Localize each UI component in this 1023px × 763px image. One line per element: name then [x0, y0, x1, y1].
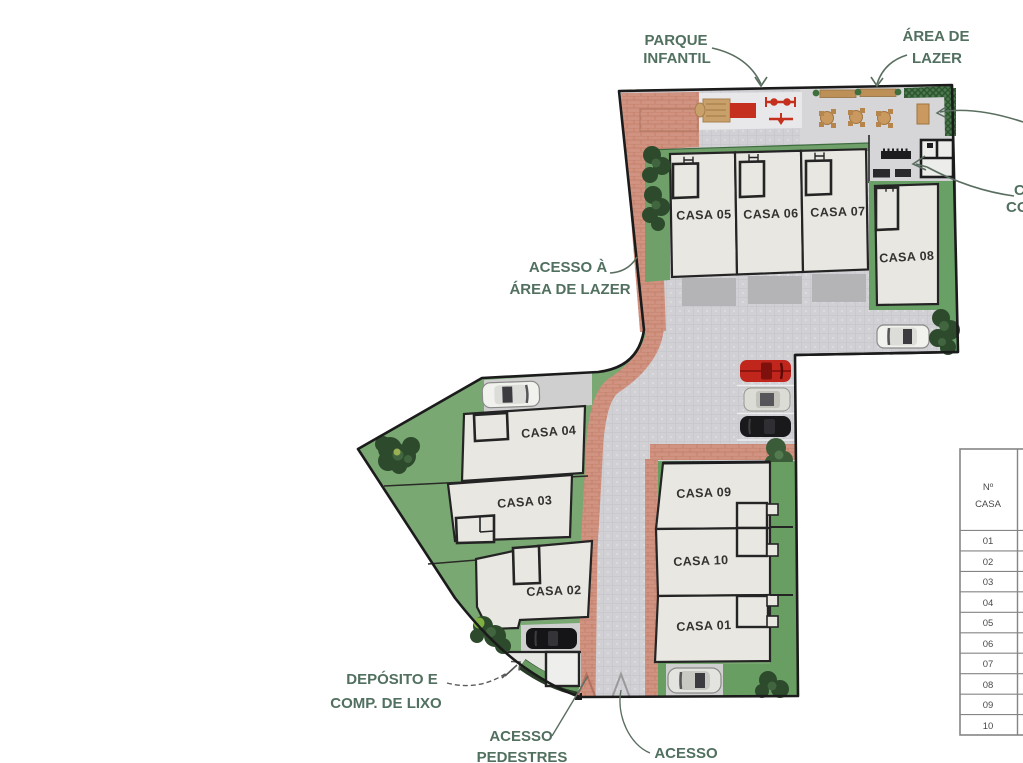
- svg-text:10: 10: [983, 721, 994, 732]
- svg-text:CO: CO: [1006, 199, 1023, 216]
- svg-text:CASA: CASA: [975, 499, 1002, 510]
- svg-text:ACESSO: ACESSO: [654, 745, 718, 762]
- svg-text:06: 06: [983, 639, 994, 650]
- svg-text:02: 02: [983, 557, 994, 568]
- svg-text:Nº: Nº: [983, 482, 994, 493]
- svg-text:08: 08: [983, 680, 994, 691]
- svg-text:05: 05: [983, 618, 994, 629]
- svg-text:CASA 10: CASA 10: [673, 553, 729, 569]
- svg-text:CASA 05: CASA 05: [676, 207, 731, 222]
- svg-text:04: 04: [983, 598, 994, 609]
- svg-text:CASA 01: CASA 01: [676, 618, 732, 634]
- svg-text:INFANTIL: INFANTIL: [643, 50, 711, 67]
- svg-text:CASA 07: CASA 07: [810, 204, 865, 219]
- svg-text:PEDESTRES: PEDESTRES: [477, 749, 568, 763]
- svg-text:09: 09: [983, 700, 994, 711]
- svg-text:CASA 09: CASA 09: [676, 485, 732, 501]
- svg-text:CH: CH: [1014, 182, 1023, 199]
- svg-text:ACESSO: ACESSO: [489, 728, 553, 745]
- svg-text:COMP. DE LIXO: COMP. DE LIXO: [330, 695, 442, 712]
- svg-text:03: 03: [983, 577, 994, 588]
- svg-text:ÁREA DE LAZER: ÁREA DE LAZER: [509, 281, 630, 298]
- svg-text:CASA 08: CASA 08: [879, 249, 935, 266]
- svg-text:LAZER: LAZER: [912, 50, 962, 67]
- svg-text:PARQUE: PARQUE: [644, 32, 707, 49]
- svg-text:CASA 06: CASA 06: [743, 206, 798, 221]
- svg-text:CASA 02: CASA 02: [526, 583, 582, 599]
- svg-text:ÁREA DE: ÁREA DE: [903, 28, 970, 45]
- svg-text:01: 01: [983, 536, 994, 547]
- svg-text:DEPÓSITO E: DEPÓSITO E: [346, 670, 437, 688]
- svg-text:ACESSO À: ACESSO À: [529, 259, 608, 276]
- svg-text:07: 07: [983, 659, 994, 670]
